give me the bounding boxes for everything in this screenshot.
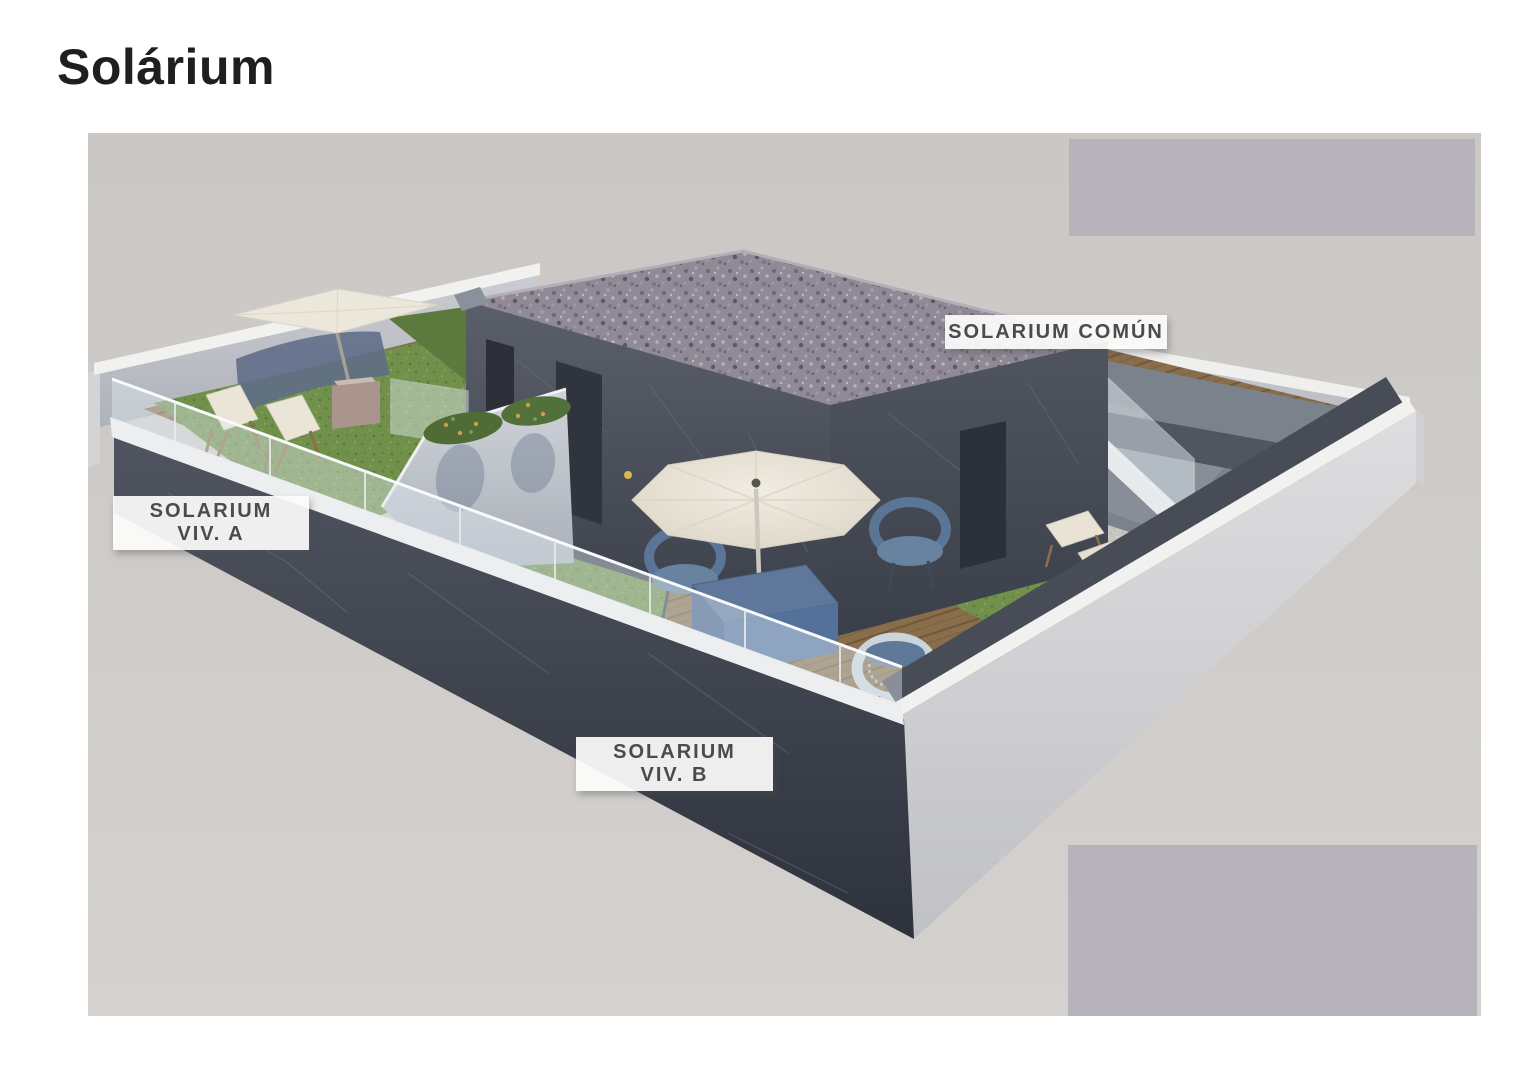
umbrella-finial (752, 479, 761, 488)
label-solarium-viv-b: SOLARIUM VIV. B (576, 737, 773, 791)
door-right (960, 421, 1006, 569)
label-line: VIV. B (576, 764, 773, 787)
placeholder-box-top-right (1069, 139, 1475, 236)
solarium-rendering-canvas: SOLARIUM VIV. A SOLARIUM VIV. B SOLARIUM… (88, 133, 1481, 1016)
label-line: SOLARIUM (113, 500, 309, 523)
label-solarium-comun: SOLARIUM COMÚN (945, 315, 1167, 349)
placeholder-box-bottom-right (1068, 845, 1477, 1016)
page-title: Solárium (57, 38, 275, 96)
label-line: VIV. A (113, 523, 309, 546)
wall-lamp (624, 471, 632, 479)
label-line: SOLARIUM COMÚN (945, 320, 1167, 344)
label-solarium-viv-a: SOLARIUM VIV. A (113, 496, 309, 550)
label-line: SOLARIUM (576, 741, 773, 764)
